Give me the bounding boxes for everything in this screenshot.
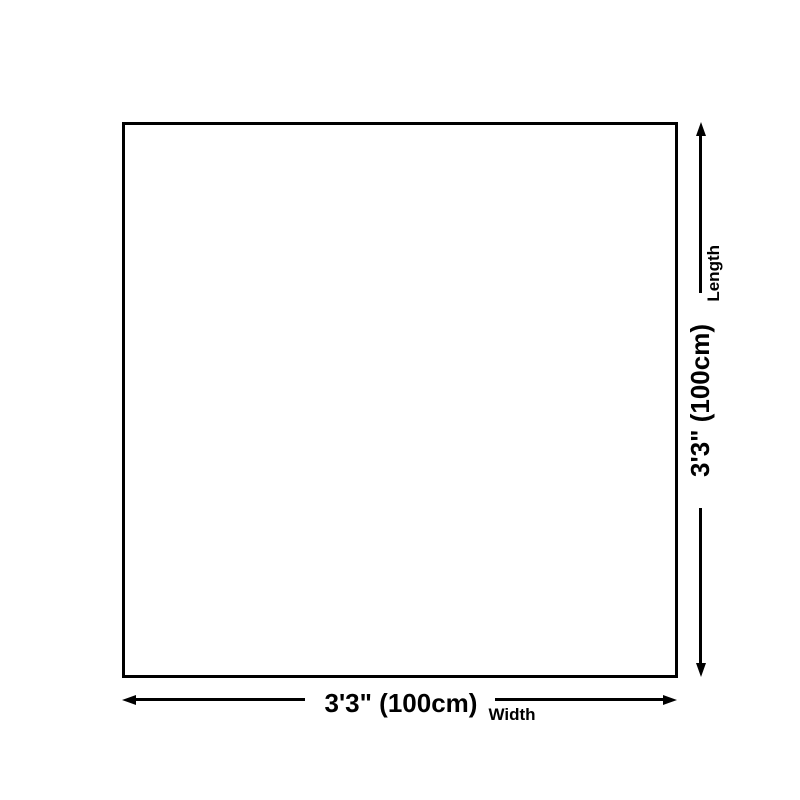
- length-axis-label-text: Length: [704, 245, 724, 302]
- length-dimension-value: 3'3" (100cm): [682, 326, 718, 474]
- length-dimension-value-text: 3'3" (100cm): [685, 324, 716, 477]
- length-axis-label: Length: [701, 243, 727, 303]
- width-dimension-value: 3'3" (100cm): [315, 688, 487, 718]
- length-arrow-down-icon: [696, 663, 706, 677]
- dimension-diagram: Length 3'3" (100cm) 3'3" (100cm) Width: [0, 0, 800, 800]
- width-axis-label: Width: [486, 705, 538, 725]
- product-outline: [122, 122, 678, 678]
- width-arrow-line-right: [495, 698, 666, 701]
- width-arrow-line-left: [133, 698, 305, 701]
- width-axis-label-text: Width: [488, 705, 535, 725]
- width-dimension-value-text: 3'3" (100cm): [325, 688, 478, 719]
- length-arrow-line-bottom: [699, 508, 702, 666]
- width-arrow-right-icon: [663, 695, 677, 705]
